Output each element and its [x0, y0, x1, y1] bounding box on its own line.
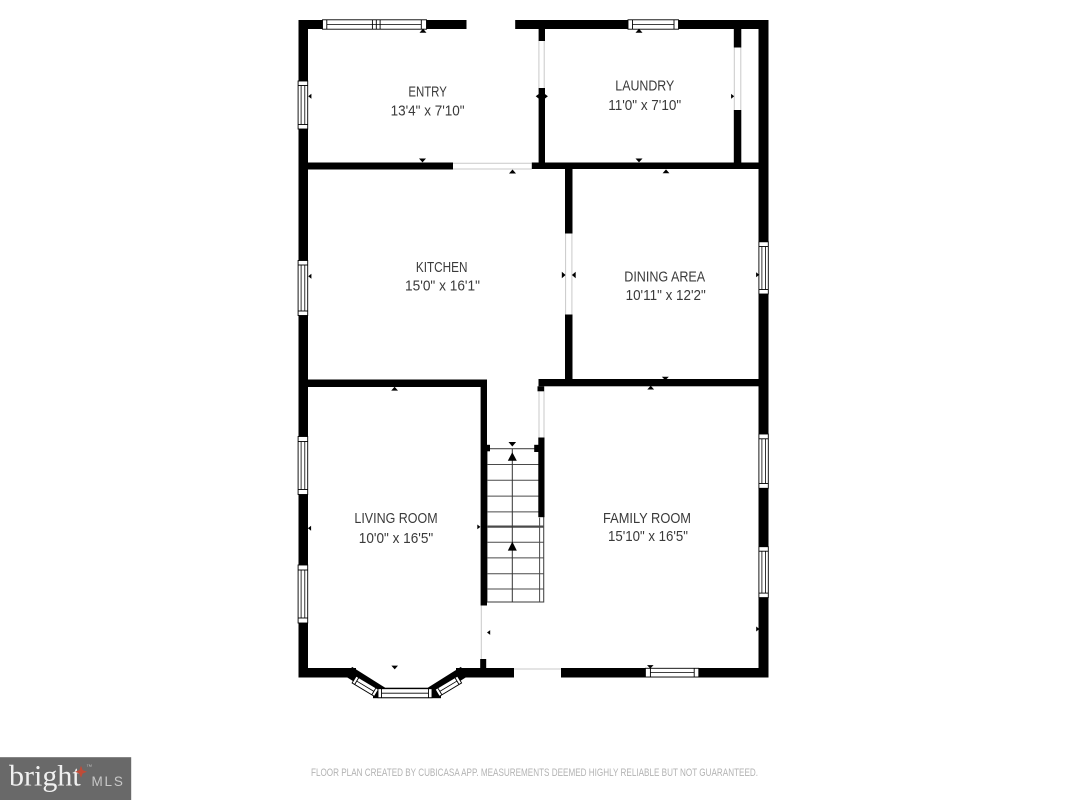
svg-text:LIVING ROOM: LIVING ROOM [354, 510, 437, 527]
svg-text:MLS: MLS [92, 774, 125, 789]
svg-text:™: ™ [86, 764, 92, 771]
svg-text:10'11" x 12'2": 10'11" x 12'2" [626, 287, 706, 304]
svg-text:ENTRY: ENTRY [408, 84, 447, 101]
svg-text:11'0" x 7'10": 11'0" x 7'10" [608, 97, 681, 114]
svg-text:FLOOR PLAN CREATED BY CUBICASA: FLOOR PLAN CREATED BY CUBICASA APP. MEAS… [311, 767, 758, 779]
svg-text:10'0" x 16'5": 10'0" x 16'5" [359, 530, 433, 547]
svg-text:FAMILY ROOM: FAMILY ROOM [603, 510, 691, 527]
svg-text:13'4" x 7'10": 13'4" x 7'10" [391, 103, 465, 120]
svg-text:LAUNDRY: LAUNDRY [615, 77, 674, 94]
svg-text:DINING AREA: DINING AREA [624, 268, 705, 285]
svg-text:15'10" x 16'5": 15'10" x 16'5" [608, 528, 688, 545]
svg-text:KITCHEN: KITCHEN [416, 259, 468, 276]
svg-text:15'0" x 16'1": 15'0" x 16'1" [405, 278, 480, 295]
svg-text:bright: bright [9, 760, 81, 793]
